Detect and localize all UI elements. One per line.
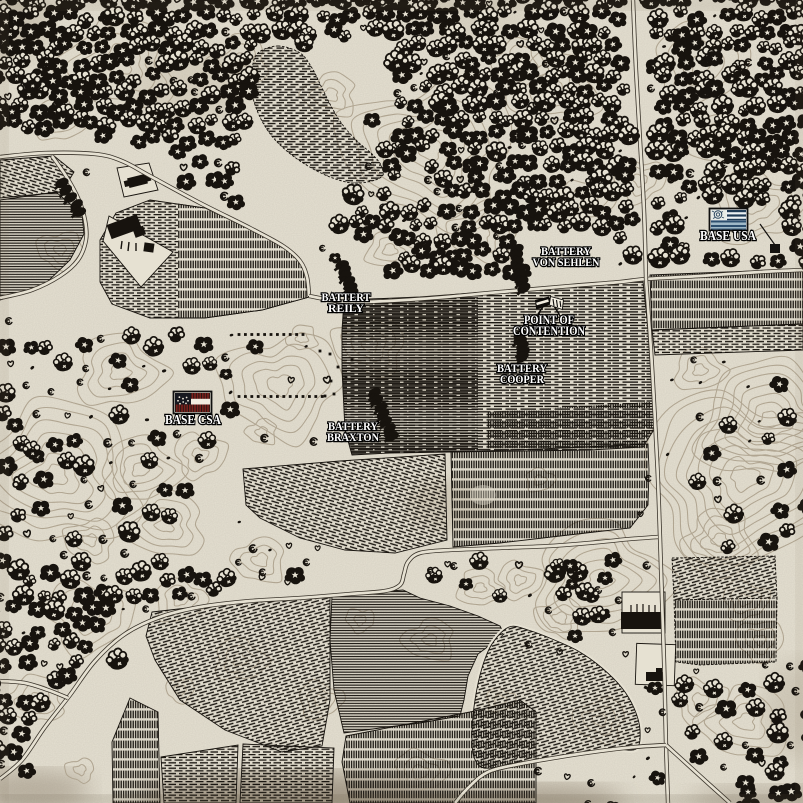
svg-text:CONTENTION: CONTENTION	[513, 324, 585, 338]
svg-text:BASE USA: BASE USA	[700, 229, 757, 244]
svg-text:VON SEHLEN: VON SEHLEN	[533, 255, 600, 269]
svg-text:COOPER: COOPER	[500, 372, 544, 386]
svg-text:REILY: REILY	[328, 301, 364, 315]
svg-text:BRAXTON: BRAXTON	[327, 430, 379, 444]
svg-text:BASE CSA: BASE CSA	[165, 413, 222, 428]
